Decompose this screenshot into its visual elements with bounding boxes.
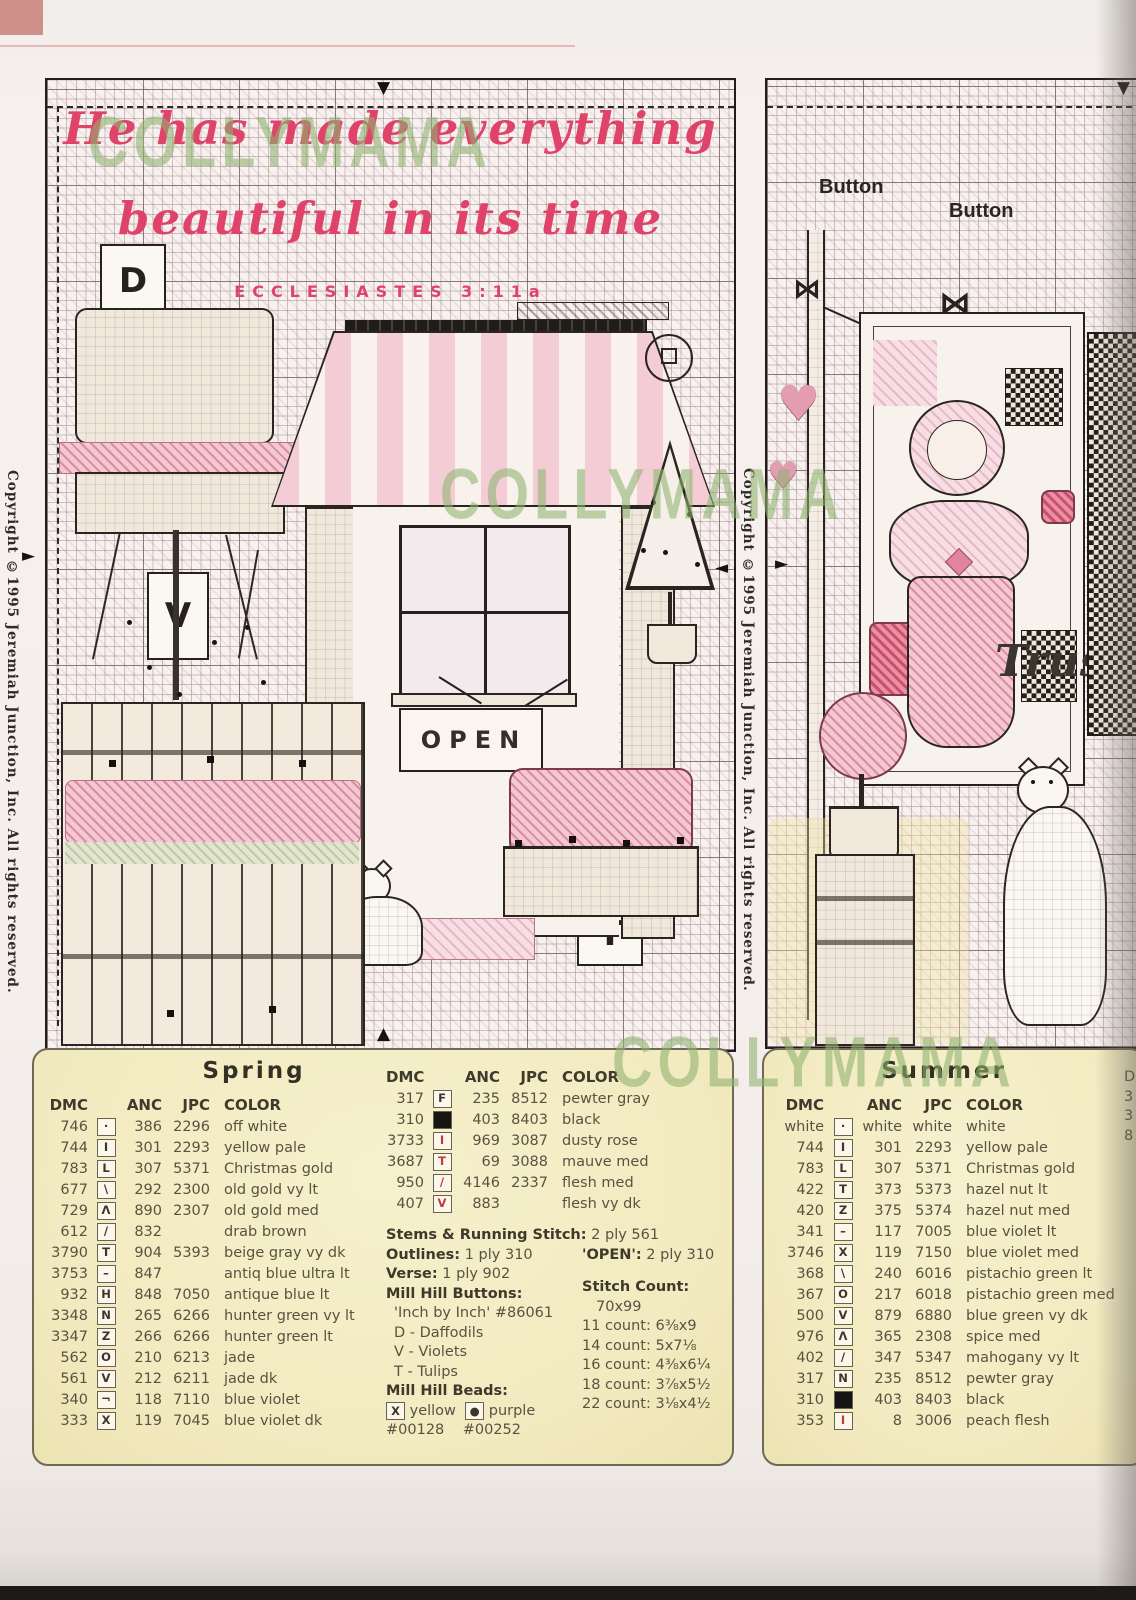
legend-cell: hazel nut med: [956, 1203, 1136, 1219]
legend-cell: flesh med: [552, 1175, 724, 1191]
list-item: 14 count: 5x7⅛: [582, 1337, 727, 1357]
legend-cell: hunter green lt: [214, 1329, 380, 1345]
legend-row: 3733I9693087dusty rose: [386, 1130, 724, 1151]
spring-legend-title: Spring: [94, 1058, 414, 1084]
legend-cell: yellow pale: [956, 1140, 1136, 1156]
list-item: 8: [1124, 1127, 1136, 1147]
center-arrow-top: ▼: [1117, 80, 1130, 97]
legend-cell: drab brown: [214, 1224, 380, 1240]
spring-thread-table-2: DMC ANC JPC COLOR 317F2358512pewter gray…: [386, 1066, 724, 1214]
copyright-right: Copyright ©1995 Jeremiah Junction, Inc. …: [740, 468, 756, 1053]
legend-row: 3104038403black: [776, 1389, 1136, 1410]
vine-berry: [177, 692, 182, 697]
swirl-ornament-center: [661, 348, 677, 364]
stitch-symbol: V: [834, 1307, 853, 1325]
list-item: D - Daffodils: [394, 1324, 586, 1344]
legend-cell: 210: [120, 1350, 166, 1366]
fence-foliage-band: [65, 842, 359, 864]
bead: [269, 1006, 276, 1013]
verse-value: 1 ply 902: [442, 1266, 510, 1282]
outlines-note: Outlines: 1 ply 310: [386, 1246, 586, 1266]
stitch-symbol: T: [433, 1153, 452, 1171]
legend-row: 3687T693088mauve med: [386, 1151, 724, 1172]
legend-cell: 212: [120, 1371, 166, 1387]
list-item: D: [1124, 1068, 1136, 1088]
stitch-symbol: L: [97, 1160, 116, 1178]
center-arrow-top: ▼: [377, 80, 390, 97]
col-anc: ANC: [120, 1096, 166, 1114]
legend-cell: dusty rose: [552, 1133, 724, 1149]
bead: [299, 760, 306, 767]
legend-cell: 368: [776, 1266, 828, 1282]
bead: [569, 836, 576, 843]
fence-rail: [63, 750, 363, 755]
scan-corner-swatch: [0, 0, 43, 35]
legend-cell: antiq blue ultra lt: [214, 1266, 380, 1282]
verse-line-2: beautiful in its time: [47, 192, 734, 245]
legend-cell: 7045: [166, 1413, 214, 1429]
legend-cell: 341: [776, 1224, 828, 1240]
bead: [207, 756, 214, 763]
legend-row: 561V2126211jade dk: [46, 1368, 380, 1389]
vine-berry: [245, 625, 250, 630]
legend-cell: pewter gray: [956, 1371, 1136, 1387]
stitch-symbol: /: [834, 1349, 853, 1367]
legend-cell: 6213: [166, 1350, 214, 1366]
legend-cell: 2308: [906, 1329, 956, 1345]
legend-cell: 2296: [166, 1119, 214, 1135]
legend-cell: 317: [386, 1091, 428, 1107]
stitch-symbol: H: [97, 1286, 116, 1304]
legend-cell: 932: [46, 1287, 92, 1303]
center-arrow-left: ►: [775, 556, 788, 573]
legend-cell: 783: [46, 1161, 92, 1177]
stitch-symbol: L: [834, 1160, 853, 1178]
bead-code-2: #00252: [463, 1422, 521, 1438]
pedestal-band: [817, 896, 913, 901]
stems-note: Stems & Running Stitch: 2 ply 561: [386, 1226, 586, 1246]
spring-thread-table: DMC ANC JPC COLOR 746·3862296off white74…: [46, 1094, 380, 1431]
legend-row: 612/832drab brown: [46, 1221, 380, 1242]
legend-row: 367O2176018pistachio green med: [776, 1284, 1136, 1305]
legend-cell: blue violet dk: [214, 1413, 380, 1429]
legend-cell: 883: [456, 1196, 504, 1212]
stitch-symbol: I: [834, 1139, 853, 1157]
col-jpc: JPC: [906, 1096, 956, 1114]
tree-berry: [663, 550, 668, 555]
stitch-symbol: Λ: [97, 1202, 116, 1220]
table-body: 317F2358512pewter gray3104038403black373…: [386, 1088, 724, 1214]
legend-cell: 217: [858, 1287, 906, 1303]
bead-purple-label: purple: [489, 1403, 536, 1419]
legend-cell: jade dk: [214, 1371, 380, 1387]
legend-row: 783L3075371Christmas gold: [776, 1158, 1136, 1179]
mill-hill-buttons-label: Mill Hill Buttons:: [386, 1285, 586, 1305]
col-color: COLOR: [956, 1096, 1136, 1114]
legend-row: 422T3735373hazel nut lt: [776, 1179, 1136, 1200]
legend-cell: 235: [456, 1091, 504, 1107]
legend-cell: 5371: [166, 1161, 214, 1177]
col-dmc: DMC: [46, 1096, 92, 1114]
stitch-symbol: \: [97, 1181, 116, 1199]
fence-flower-band: [65, 780, 361, 844]
open-value: 2 ply 310: [646, 1247, 714, 1263]
legend-row: 976Λ3652308spice med: [776, 1326, 1136, 1347]
legend-cell: 8403: [906, 1392, 956, 1408]
legend-cell: 729: [46, 1203, 92, 1219]
legend-cell: 307: [858, 1161, 906, 1177]
mill-hill-beads-label: Mill Hill Beads:: [386, 1382, 586, 1402]
girl-face: [927, 420, 987, 480]
picket-fence: [61, 702, 365, 1046]
ribbon-bow-icon: ⋈: [793, 272, 821, 305]
legend-cell: 744: [776, 1140, 828, 1156]
legend-cell: 7150: [906, 1245, 956, 1261]
legend-row: white·whitewhitewhite: [776, 1116, 1136, 1137]
floral-pole: [173, 530, 179, 700]
vine-berry: [261, 680, 266, 685]
stitch-symbol: N: [97, 1307, 116, 1325]
list-item: 16 count: 4⅜x6¼: [582, 1356, 727, 1376]
roof-gutter: [517, 302, 669, 320]
hanging-vine: [92, 532, 121, 660]
open-label: 'OPEN':: [582, 1247, 642, 1263]
legend-cell: 562: [46, 1350, 92, 1366]
legend-cell: 8: [858, 1413, 906, 1429]
bead: [515, 840, 522, 847]
stems-value: 2 ply 561: [591, 1227, 659, 1243]
legend-cell: 365: [858, 1329, 906, 1345]
legend-cell: 310: [776, 1392, 828, 1408]
stitch-symbol: N: [834, 1370, 853, 1388]
heart-icon: ♥: [777, 376, 820, 432]
stitch-notes: Stems & Running Stitch: 2 ply 561 Outlin…: [386, 1226, 586, 1441]
tree-berry: [641, 548, 646, 553]
legend-row: 744I3012293yellow pale: [46, 1137, 380, 1158]
col-jpc: JPC: [504, 1068, 552, 1086]
legend-cell: yellow pale: [214, 1140, 380, 1156]
legend-cell: Christmas gold: [214, 1161, 380, 1177]
legend-cell: 8403: [504, 1112, 552, 1128]
legend-cell: 403: [456, 1112, 504, 1128]
legend-row: 317N2358512pewter gray: [776, 1368, 1136, 1389]
stitch-symbol: I: [97, 1139, 116, 1157]
legend-row: 932H8487050antique blue lt: [46, 1284, 380, 1305]
legend-row: 500V8796880blue green vy dk: [776, 1305, 1136, 1326]
legend-cell: Christmas gold: [956, 1161, 1136, 1177]
legend-cell: 5371: [906, 1161, 956, 1177]
legend-row: 420Z3755374hazel nut med: [776, 1200, 1136, 1221]
legend-cell: 832: [120, 1224, 166, 1240]
bead: [623, 840, 630, 847]
legend-cell: 119: [858, 1245, 906, 1261]
center-arrow-left-chart: ►: [22, 548, 35, 565]
topiary-pedestal: [815, 854, 915, 1046]
legend-cell: 3687: [386, 1154, 428, 1170]
stitch-symbol: F: [433, 1090, 452, 1108]
window-sill: [391, 693, 577, 707]
list-item: T - Tulips: [394, 1363, 586, 1383]
legend-cell: blue green vy dk: [956, 1308, 1136, 1324]
corner-checker: [1005, 368, 1063, 426]
legend-cell: 373: [858, 1182, 906, 1198]
legend-cell: 317: [776, 1371, 828, 1387]
legend-row: 353I83006peach flesh: [776, 1410, 1136, 1431]
legend-cell: 2293: [166, 1140, 214, 1156]
center-arrow-right: ◄: [715, 560, 728, 577]
legend-row: 317F2358512pewter gray: [386, 1088, 724, 1109]
legend-cell: 950: [386, 1175, 428, 1191]
legend-cell: 117: [858, 1224, 906, 1240]
legend-cell: 2307: [166, 1203, 214, 1219]
legend-row: 746·3862296off white: [46, 1116, 380, 1137]
legend-cell: 969: [456, 1133, 504, 1149]
legend-cell: 386: [120, 1119, 166, 1135]
stitch-symbol: X: [97, 1412, 116, 1430]
stitch-symbol: –: [97, 1265, 116, 1283]
heart-icon: ♥: [767, 456, 799, 497]
mill-hill-buttons-name: 'Inch by Inch' #86061: [386, 1304, 586, 1324]
flowerbed-blooms: [509, 768, 693, 856]
legend-cell: 3790: [46, 1245, 92, 1261]
legend-cell: 347: [858, 1350, 906, 1366]
legend-cell: pewter gray: [552, 1091, 724, 1107]
stitch-symbol: I: [433, 1132, 452, 1150]
legend-cell: 5373: [906, 1182, 956, 1198]
legend-row: 407V883flesh vy dk: [386, 1193, 724, 1214]
legend-cell: black: [552, 1112, 724, 1128]
legend-cell: 2293: [906, 1140, 956, 1156]
legend-cell: 6016: [906, 1266, 956, 1282]
legend-cell: 118: [120, 1392, 166, 1408]
legend-cell: white: [956, 1119, 1136, 1135]
legend-cell: blue violet lt: [956, 1224, 1136, 1240]
stitch-symbol: /: [97, 1223, 116, 1241]
topiary-blooms: [819, 692, 907, 780]
legend-cell: 7110: [166, 1392, 214, 1408]
legend-cell: 292: [120, 1182, 166, 1198]
scan-bottom-edge: [0, 1586, 1136, 1600]
shop-window: [399, 525, 571, 699]
legend-cell: 3348: [46, 1308, 92, 1324]
legend-cell: 677: [46, 1182, 92, 1198]
legend-cell: 333: [46, 1413, 92, 1429]
legend-cell: hazel nut lt: [956, 1182, 1136, 1198]
stitch-symbol: V: [97, 1370, 116, 1388]
list-item: 3: [1124, 1107, 1136, 1127]
stitch-symbol: V: [433, 1195, 452, 1213]
legend-cell: 367: [776, 1287, 828, 1303]
legend-cell: blue violet: [214, 1392, 380, 1408]
verse-line-1: He has made everything: [47, 102, 734, 155]
scan-edge-line: [0, 45, 575, 47]
corner-bloom: [873, 340, 937, 406]
legend-cell: 744: [46, 1140, 92, 1156]
copyright-left: Copyright ©1995 Jeremiah Junction, Inc. …: [4, 470, 20, 1048]
button-key-list: D - DaffodilsV - VioletsT - Tulips: [386, 1324, 586, 1383]
bead: [109, 760, 116, 767]
col-color: COLOR: [214, 1096, 380, 1114]
legend-cell: 7050: [166, 1287, 214, 1303]
summer-chart-panel: ▼ ► Button Button ⋈ ⋈ ♥ ♥ Trus: [765, 78, 1136, 1049]
cutoff-dark-motif: [1087, 332, 1136, 736]
col-dmc: DMC: [776, 1096, 828, 1114]
legend-cell: 119: [120, 1413, 166, 1429]
legend-cell: 783: [776, 1161, 828, 1177]
legend-row: 677\2922300old gold vy lt: [46, 1179, 380, 1200]
legend-cell: pistachio green med: [956, 1287, 1136, 1303]
stitch-count-value: 70x99: [582, 1298, 727, 1318]
summer-legend-title: Summer: [784, 1058, 1104, 1084]
legend-row: 3347Z2666266hunter green lt: [46, 1326, 380, 1347]
open-note: 'OPEN': 2 ply 310: [582, 1246, 727, 1266]
tree-berry: [651, 500, 656, 505]
table-body: 746·3862296off white744I3012293yellow pa…: [46, 1116, 380, 1431]
legend-cell: 422: [776, 1182, 828, 1198]
legend-cell: 3753: [46, 1266, 92, 1282]
legend-cell: 890: [120, 1203, 166, 1219]
legend-cell: 612: [46, 1224, 92, 1240]
legend-cell: jade: [214, 1350, 380, 1366]
legend-cell: hunter green vy lt: [214, 1308, 380, 1324]
legend-cell: 265: [120, 1308, 166, 1324]
stitch-symbol: ·: [834, 1118, 853, 1136]
legend-cell: 266: [120, 1329, 166, 1345]
legend-cell: 407: [386, 1196, 428, 1212]
floral-foliage: [75, 308, 274, 444]
legend-cell: mauve med: [552, 1154, 724, 1170]
list-item: 22 count: 3⅛x4½: [582, 1395, 727, 1415]
legend-row: 562O2106213jade: [46, 1347, 380, 1368]
spring-chart-panel: ▼ ▲ ◄ He has made everything beautiful i…: [45, 78, 736, 1052]
legend-row: 729Λ8902307old gold med: [46, 1200, 380, 1221]
legend-row: 341–1177005blue violet lt: [776, 1221, 1136, 1242]
bead: [167, 1010, 174, 1017]
vine-berry: [127, 620, 132, 625]
col-anc: ANC: [858, 1096, 906, 1114]
legend-cell: 904: [120, 1245, 166, 1261]
legend-row: 3753–847antiq blue ultra lt: [46, 1263, 380, 1284]
list-item: V - Violets: [394, 1343, 586, 1363]
hanging-vine: [238, 550, 259, 659]
registration-dash-top: [767, 106, 1136, 108]
table-body: white·whitewhitewhite744I3012293yellow p…: [776, 1116, 1136, 1431]
stitch-symbol: ¬: [97, 1391, 116, 1409]
stitch-symbol: Λ: [834, 1328, 853, 1346]
legend-cell: 5347: [906, 1350, 956, 1366]
legend-cell: 976: [776, 1329, 828, 1345]
legend-cell: 5374: [906, 1203, 956, 1219]
legend-cell: white: [858, 1119, 906, 1135]
legend-row: 333X1197045blue violet dk: [46, 1410, 380, 1431]
legend-cell: blue violet med: [956, 1245, 1136, 1261]
legend-cell: 3006: [906, 1413, 956, 1429]
stitch-symbol: T: [97, 1244, 116, 1262]
stitch-symbol: Z: [834, 1202, 853, 1220]
legend-cell: old gold vy lt: [214, 1182, 380, 1198]
topiary-pot: [829, 806, 899, 859]
outlines-label: Outlines:: [386, 1247, 460, 1263]
pedestal-band: [817, 940, 913, 945]
legend-row: 744I3012293yellow pale: [776, 1137, 1136, 1158]
button-callout-1: Button: [819, 176, 883, 199]
stitch-count-label: Stitch Count:: [582, 1278, 727, 1298]
legend-row: 3746X1197150blue violet med: [776, 1242, 1136, 1263]
stitch-symbol: I: [834, 1412, 853, 1430]
legend-row: 340¬1187110blue violet: [46, 1389, 380, 1410]
button-callout-2: Button: [949, 200, 1013, 223]
bead-symbol-yellow: X: [386, 1402, 405, 1420]
legend-cell: 6266: [166, 1329, 214, 1345]
bead-codes-row: #00128 #00252: [386, 1421, 586, 1441]
scanned-pattern-page: Copyright ©1995 Jeremiah Junction, Inc. …: [0, 0, 1136, 1600]
stitch-symbol: O: [97, 1349, 116, 1367]
button-marker-d: D: [100, 244, 166, 318]
legend-cell: 402: [776, 1350, 828, 1366]
legend-cell: antique blue lt: [214, 1287, 380, 1303]
cat-eye: [1031, 780, 1035, 784]
legend-cell: 6018: [906, 1287, 956, 1303]
legend-cell: 7005: [906, 1224, 956, 1240]
count-size-list: 11 count: 6⅜x914 count: 5x7⅛16 count: 4⅜…: [582, 1317, 727, 1415]
legend-cell: 5393: [166, 1245, 214, 1261]
legend-cell: 420: [776, 1203, 828, 1219]
legend-cell: 340: [46, 1392, 92, 1408]
legend-row: 368\2406016pistachio green lt: [776, 1263, 1136, 1284]
stitch-symbol: \: [834, 1265, 853, 1283]
bead: [677, 837, 684, 844]
table-header: DMC ANC JPC COLOR: [386, 1066, 724, 1088]
topiary-stem: [859, 774, 864, 808]
legend-cell: 301: [120, 1140, 166, 1156]
legend-cell: 310: [386, 1112, 428, 1128]
cutoff-next-column: D338: [1124, 1068, 1136, 1146]
legend-cell: 301: [858, 1140, 906, 1156]
rose-cluster: [1041, 490, 1075, 524]
legend-cell: 500: [776, 1308, 828, 1324]
legend-cell: 6211: [166, 1371, 214, 1387]
legend-cell: 8512: [504, 1091, 552, 1107]
flowerbed-planter: [503, 846, 699, 917]
col-color: COLOR: [552, 1068, 724, 1086]
tree-berry: [695, 562, 700, 567]
col-anc: ANC: [456, 1068, 504, 1086]
legend-row: 402/3475347mahogany vy lt: [776, 1347, 1136, 1368]
col-jpc: JPC: [166, 1096, 214, 1114]
legend-cell: 6266: [166, 1308, 214, 1324]
tree-berry: [687, 512, 692, 517]
center-arrow-bottom: ▲: [377, 1026, 390, 1043]
legend-cell: 353: [776, 1413, 828, 1429]
legend-cell: beige gray vy dk: [214, 1245, 380, 1261]
legend-row: 3790T9045393beige gray vy dk: [46, 1242, 380, 1263]
legend-cell: spice med: [956, 1329, 1136, 1345]
floral-box: [75, 472, 285, 534]
verse-label: Verse:: [386, 1266, 438, 1282]
list-item: 18 count: 3⅞x5½: [582, 1376, 727, 1396]
outlines-value: 1 ply 310: [465, 1247, 533, 1263]
legend-cell: 375: [858, 1203, 906, 1219]
col-dmc: DMC: [386, 1068, 428, 1086]
legend-cell: 879: [858, 1308, 906, 1324]
stitch-symbol: O: [834, 1286, 853, 1304]
open-sign: OPEN: [399, 708, 543, 772]
table-header: DMC ANC JPC COLOR: [776, 1094, 1136, 1116]
legend-cell: 403: [858, 1392, 906, 1408]
legend-cell: 2300: [166, 1182, 214, 1198]
legend-cell: 240: [858, 1266, 906, 1282]
stitch-count-block: Stitch Count: 70x99 11 count: 6⅜x914 cou…: [582, 1278, 727, 1415]
